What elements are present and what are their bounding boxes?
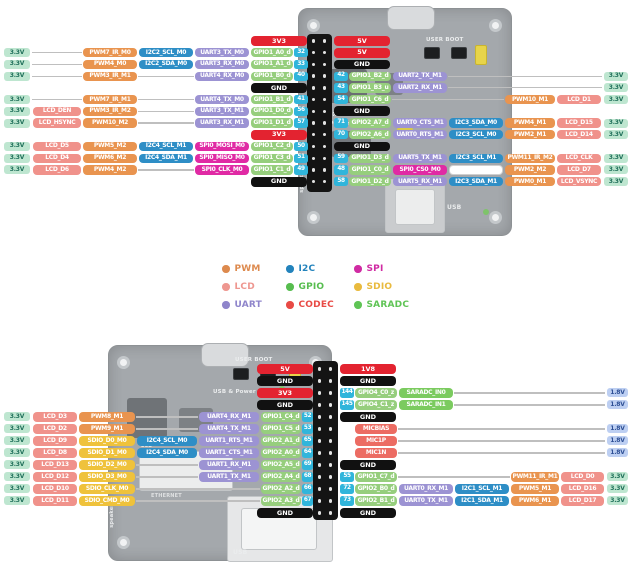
label-slot: LCD_D8 [32,448,78,459]
label-slot: SARADC_IN1 [398,400,454,411]
i2c-label: I2C2_SDA_M0 [139,60,193,69]
header-pin-dot [323,157,326,160]
label-slot [454,448,510,459]
lcd-label: LCD_D3 [33,412,77,421]
power-pin: 5V [334,36,390,46]
label-slot: UART4_TX_M1 [198,424,260,435]
power-pin: 5V [334,48,390,58]
pin-number: 54 [334,95,348,104]
label-slot: LCD_D9 [32,436,78,447]
label-slot: 3.3V [2,472,32,483]
pwm-label: PWM7_IR_M0 [83,48,137,57]
label-slot: 3.3V [2,496,32,507]
pwm-label: PWM6_M2 [83,154,137,163]
label-slot: I2C2_SCL_M0 [138,47,194,58]
label-slot: GPIO2_A7_d [348,118,392,129]
pwm-label: PWM2_M1 [505,130,555,139]
label-slot [510,424,560,435]
label-slot: UART4_TX_M0 [194,94,250,105]
pin-number: 50 [294,142,308,151]
connection-wire [556,76,602,77]
label-slot: LCD_D2 [32,424,78,435]
connection-wire [560,404,605,405]
connection-wire [398,440,454,441]
label-slot: LCD_D14 [556,129,602,140]
label-slot [198,484,260,495]
label-slot: GPIO1_D2_d [348,176,392,187]
lcd-label: LCD_D2 [33,424,77,433]
legend-color-dot [286,265,294,273]
gpio-label: GPIO2_A2_d [261,484,301,493]
uart-label: UART1_TX_M1 [199,472,259,481]
label-slot: GPIO1_A0_d [250,47,294,58]
label-slot: 3.3V [2,484,32,495]
legend-item-saradc: SARADC [354,300,438,310]
pin-number: 53 [302,424,313,433]
pin-row: 73GPIO2_B1_dUART0_TX_M1I2C1_SDA_M1PWM6_M… [340,496,630,507]
pin-row: 3.3VPWM4_M0I2C2_SDA_M0UART3_RX_M0GPIO1_A… [2,59,307,70]
connection-wire [510,404,560,405]
voltage-rail: 3.3V [607,496,628,505]
ground-pin: GND [340,460,396,470]
label-slot: LCD_D16 [560,484,605,495]
label-slot: 49 [294,165,308,176]
label-slot: GPIO1_C7_d [354,472,398,483]
label-slot: UART5_RX_M1 [392,176,448,187]
label-slot: UART3_RX_M0 [194,59,250,70]
legend-label: UART [235,300,262,310]
connection-wire [454,428,510,429]
label-slot: PWM4_M1 [504,118,556,129]
pin-row: 3V3 [2,388,313,399]
voltage-rail: 3.3V [4,460,30,469]
legend-item-pwm: PWM [222,264,286,274]
label-slot: 3.3V [605,496,630,507]
pin-row: 3V3 [2,36,307,47]
pwm-label: PWM10_M2 [83,118,137,127]
header-pin-dot [329,463,332,466]
voltage-rail: 3.3V [4,412,30,421]
header-pin-dot [312,157,315,160]
label-slot: 3.3V [602,176,630,187]
ground-pin: GND [257,376,313,386]
legend-color-dot [286,301,294,309]
label-slot: MICBIAS [354,424,398,435]
label-slot: PWM10_M2 [82,118,138,129]
label-slot: GPIO2_A5_d [260,460,302,471]
label-slot: SDIO_D2_M0 [78,460,136,471]
label-slot: 3.3V [602,83,630,94]
label-slot [138,106,194,117]
header-pin-dot [329,511,332,514]
sdio-label: SDIO_D1_M0 [79,448,135,457]
header-pin-dot [323,74,326,77]
label-slot: GPIO1_B2_d [348,71,392,82]
lcd-label: LCD_DEN [33,107,81,116]
voltage-rail: 3.3V [607,472,628,481]
sdio-label: SDIO_CLK_M0 [79,484,135,493]
connection-wire [398,476,454,477]
label-slot: I2C3_SCL_M1 [448,153,504,164]
label-slot: 3.3V [2,94,32,105]
header-pin-dot [318,403,321,406]
connection-wire [448,99,504,100]
voltage-rail: 3.3V [4,60,30,69]
legend-label: SDIO [367,282,393,292]
pwm-label: PWM9_M1 [79,424,135,433]
connection-wire [136,428,198,429]
pin-number: 33 [294,60,308,69]
legend-item-i2c: I2C [286,264,354,274]
pwm-label: PWM8_M1 [79,412,135,421]
header-pin-dot [318,415,321,418]
label-slot: UART1_RTS_M1 [198,436,260,447]
lcd-label: LCD_D9 [33,436,77,445]
gpio-label: GPIO4_C0_z [355,388,397,397]
label-slot: 3.3V [605,484,630,495]
header-pin-dot [312,39,315,42]
pin-row: 3.3VLCD_D8SDIO_D1_M0I2C4_SDA_M0UART1_CTS… [2,448,313,459]
gpio-label: GPIO1_B2_d [349,72,391,81]
pin-number: 73 [340,496,354,505]
label-slot: PWM0_M1 [504,176,556,187]
label-slot: MIC1N [354,448,398,459]
label-slot: GPIO1_C0_d [348,165,392,176]
legend-label: SARADC [367,300,410,310]
gpio-label: GPIO1_B1_d [251,95,293,104]
pin-row: 3.3VLCD_DENPWM3_IR_M2UART3_TX_M1GPIO1_D0… [2,106,307,117]
legend: PWMI2CSPILCDGPIOSDIOUARTCODECSARADC [222,260,438,314]
label-slot: 3.3V [602,94,630,105]
label-slot: GPIO1_B3_u [348,83,392,94]
i2c-label: I2C3_SCL_M1 [449,154,503,163]
header-pin-dot [318,499,321,502]
pin-row: 71GPIO2_A7_dUART0_CTS_M1I2C3_SDA_M0PWM4_… [334,118,630,129]
label-slot: PWM3_IR_M2 [82,106,138,117]
voltage-rail: 3.3V [4,165,30,174]
gpio-label: GPIO1_B3_u [349,83,391,92]
connection-wire [138,76,194,77]
label-slot [32,94,82,105]
uart-label: UART3_TX_M0 [195,48,249,57]
label-slot: UART0_RX_M1 [398,484,454,495]
gpio-label: GPIO2_A6_d [349,130,391,139]
codec-label: MIC1P [355,436,397,445]
voltage-rail: 1.8V [607,436,628,445]
label-slot: LCD_VSYNC [556,176,602,187]
label-slot [136,484,198,495]
header-pin-dot [323,63,326,66]
pin-number: 71 [334,118,348,127]
ground-pin: GND [251,177,307,187]
pin-number: 59 [334,154,348,163]
label-slot: I2C4_SCL_M0 [136,436,198,447]
uart-label: UART0_TX_M1 [399,496,453,505]
pin-row: 48GPIO1_C0_dSPI0_CS0_M0PWM2_M2LCD_D73.3V [334,165,630,176]
pin-row: 3.3VLCD_D12SDIO_D3_M0UART1_TX_M1GPIO2_A4… [2,472,313,483]
label-slot: 51 [294,153,308,164]
voltage-rail: 3.3V [4,154,30,163]
header-pin-dot [312,51,315,54]
legend-item-uart: UART [222,300,286,310]
label-slot [398,436,454,447]
label-slot [340,448,354,459]
lcd-label: LCD_D15 [557,118,601,127]
label-slot: 3.3V [2,47,32,58]
label-slot: 32 [294,47,308,58]
connection-wire [398,452,454,453]
label-slot [340,436,354,447]
voltage-rail: 3.3V [604,95,628,104]
label-slot: PWM7_IR_M1 [82,94,138,105]
header-pin-dot [329,427,332,430]
pin-row: 3.3VLCD_D6PWM4_M2SPI0_CLK_M0GPIO1_C1_d49 [2,165,307,176]
gpio-label: GPIO2_A3_d [261,496,301,505]
label-slot: 65 [302,436,313,447]
label-slot: LCD_D17 [560,496,605,507]
label-slot: 3.3V [2,141,32,152]
mounting-hole [117,536,130,549]
header-pin-dot [318,487,321,490]
connection-wire [510,428,560,429]
pin-number: 56 [294,107,308,116]
ground-pin: GND [334,106,390,116]
connection-wire [510,440,560,441]
label-slot: PWM3_IR_M1 [82,71,138,82]
voltage-rail: 3.3V [4,119,30,128]
pin-number: 67 [302,496,313,505]
label-slot [136,472,198,483]
label-slot [448,83,504,94]
label-slot: I2C1_SDA_M1 [454,496,510,507]
codec-label: MIC1N [355,448,397,457]
pin-row: 5V [334,47,630,58]
header-pin-dot [312,145,315,148]
label-slot: GPIO1_C6_d [348,94,392,105]
label-slot [510,388,560,399]
label-slot: 1.8V [605,436,630,447]
lcd-label: LCD_D0 [561,472,604,481]
pin-row: MIC1N1.8V [340,448,630,459]
codec-label: MICBIAS [355,424,397,433]
connection-wire [138,122,194,123]
label-slot: PWM10_M1 [504,94,556,105]
pin-number: 69 [302,460,313,469]
header-pin-dot [323,121,326,124]
pin-row: 144GPIO4_C0_zSARADC_IN01.8V [340,388,630,399]
i2c-label: I2C1_SDA_M1 [455,496,509,505]
ground-pin: GND [334,142,390,152]
label-slot [560,448,605,459]
label-slot: 3.3V [602,118,630,129]
pin-row: 3.3VPWM7_IR_M1UART4_TX_M0GPIO1_B1_d41 [2,94,307,105]
sdio-label: SDIO_D0_M0 [79,436,135,445]
gpio-label: GPIO1_C5_d [261,424,301,433]
uart-label: UART2_TX_M1 [393,72,447,81]
connection-wire [32,64,82,65]
i2c-label: I2C4_SCL_M1 [139,142,193,151]
connection-wire [392,99,448,100]
label-slot: 3.3V [2,59,32,70]
label-slot: LCD_D4 [32,153,82,164]
label-slot: LCD_HSYNC [32,118,82,129]
lcd-label: LCD_D1 [557,95,601,104]
connection-wire [138,169,194,170]
label-slot [510,400,560,411]
lcd-label: LCD_D5 [33,142,81,151]
spi-label: SPI0_MISO_M0 [195,154,249,163]
label-slot: 3.3V [2,448,32,459]
label-slot: SDIO_D3_M0 [78,472,136,483]
label-slot: GPIO1_C3_d [250,153,294,164]
pwm-label: PWM11_IR_M1 [511,472,559,481]
pin-row: 3.3VLCD_D13SDIO_D2_M0UART1_RX_M1GPIO2_A5… [2,460,313,471]
voltage-rail: 3.3V [604,72,628,81]
label-slot [454,400,510,411]
pin-number: 65 [302,436,313,445]
label-slot: PWM11_IR_M2 [504,153,556,164]
legend-item-lcd: LCD [222,282,286,292]
empty-label [449,165,503,174]
label-slot: 3.3V [605,472,630,483]
label-slot: GPIO1_C4_d [260,412,302,423]
uart-label: UART4_TX_M1 [199,424,259,433]
connection-wire [454,392,510,393]
i2c-label: I2C4_SDA_M0 [137,448,197,457]
pin-number: 40 [294,72,308,81]
label-slot: UART3_TX_M1 [194,106,250,117]
label-slot: 3.3V [2,412,32,423]
header-pin-dot [329,451,332,454]
label-slot: 1.8V [605,424,630,435]
pwm-label: PWM2_M2 [505,165,555,174]
label-slot: I2C2_SDA_M0 [138,59,194,70]
connection-wire [138,99,194,100]
pinout-diagram: USER BOOT LUCKFOX USB & Power Rev2.0 USB… [0,0,640,576]
mounting-hole [489,19,502,32]
label-slot: 3.3V [2,424,32,435]
pwm-label: PWM11_IR_M2 [505,154,555,163]
label-slot [560,436,605,447]
connection-wire [136,416,198,417]
ground-pin: GND [251,83,307,93]
pwm-label: PWM6_M1 [511,496,559,505]
connection-wire [136,464,198,465]
label-slot: 3.3V [2,165,32,176]
pin-row: GND [340,508,630,519]
uart-label: UART0_RX_M1 [399,484,453,493]
uart-label: UART4_RX_M0 [195,72,249,81]
label-slot [454,436,510,447]
label-slot: 41 [294,94,308,105]
pin-row: 43GPIO1_B3_uUART2_RX_M13.3V [334,83,630,94]
label-slot: LCD_D5 [32,141,82,152]
voltage-rail: 3.3V [4,48,30,57]
pwm-label: PWM10_M1 [505,95,555,104]
connection-wire [560,452,605,453]
label-slot: GPIO4_C1_z [354,400,398,411]
voltage-rail: 3.3V [604,130,628,139]
header-pin-dot [329,415,332,418]
label-slot: 1.8V [605,400,630,411]
gpio-label: GPIO1_D0_d [251,107,293,116]
power-pin: 3V3 [257,388,313,398]
label-slot: GPIO1_C1_d [250,165,294,176]
pin-number: 64 [302,448,313,457]
pin-number: 70 [334,130,348,139]
label-slot: PWM2_M2 [504,165,556,176]
label-slot: LCD_D15 [556,118,602,129]
label-slot: 43 [334,83,348,94]
label-slot [448,71,504,82]
label-slot: PWM4_M2 [82,165,138,176]
ground-pin: GND [334,60,390,70]
header-pin-dot [329,487,332,490]
label-slot: GPIO1_B0_d [250,71,294,82]
legend-color-dot [222,265,230,273]
top-pin-header [307,34,332,192]
header-pin-dot [329,439,332,442]
pin-row: 42GPIO1_B2_dUART2_TX_M13.3V [334,71,630,82]
lcd-label: LCD_D16 [561,484,604,493]
pin-row: 3.3VLCD_HSYNCPWM10_M2UART3_RX_M1GPIO1_D1… [2,118,307,129]
header-pin-dot [318,511,321,514]
gpio-label: GPIO2_B1_d [355,496,397,505]
pin-row: 59GPIO1_D3_dUART5_TX_M1I2C3_SCL_M1PWM11_… [334,153,630,164]
lcd-label: LCD_D10 [33,484,77,493]
label-slot: SPI0_CS0_M0 [392,165,448,176]
sdio-label: SDIO_D3_M0 [79,472,135,481]
label-slot: GPIO2_A3_d [260,496,302,507]
label-slot [448,94,504,105]
header-pin-dot [312,98,315,101]
label-slot: GPIO2_A0_d [260,448,302,459]
label-slot: LCD_D12 [32,472,78,483]
header-pin-dot [323,133,326,136]
label-slot: 70 [334,129,348,140]
label-slot: I2C3_SCL_M0 [448,129,504,140]
label-slot: SPI0_MISO_M0 [194,153,250,164]
legend-color-dot [286,283,294,291]
ground-pin: GND [257,400,313,410]
label-slot: GPIO2_A4_d [260,472,302,483]
board-silkscreen-usb: USB [233,550,247,556]
label-slot [510,448,560,459]
label-slot [454,424,510,435]
pin-number: 49 [294,165,308,174]
legend-label: SPI [367,264,384,274]
voltage-rail: 3.3V [4,472,30,481]
lcd-label: LCD_HSYNC [33,118,81,127]
label-slot: 3.3V [602,153,630,164]
gpio-label: GPIO1_D1_d [251,118,293,127]
connection-wire [510,392,560,393]
connection-wire [138,111,194,112]
voltage-rail: 3.3V [604,165,628,174]
uart-label: UART3_RX_M0 [195,60,249,69]
connection-wire [32,99,82,100]
label-slot: SARADC_IN0 [398,388,454,399]
label-slot [398,472,454,483]
pin-row: GND [2,400,313,411]
gpio-label: GPIO1_C2_d [251,142,293,151]
label-slot [138,165,194,176]
label-slot [198,496,260,507]
pin-number: 32 [294,48,308,57]
voltage-rail: 3.3V [604,83,628,92]
label-slot [32,71,82,82]
voltage-rail: 3.3V [4,424,30,433]
